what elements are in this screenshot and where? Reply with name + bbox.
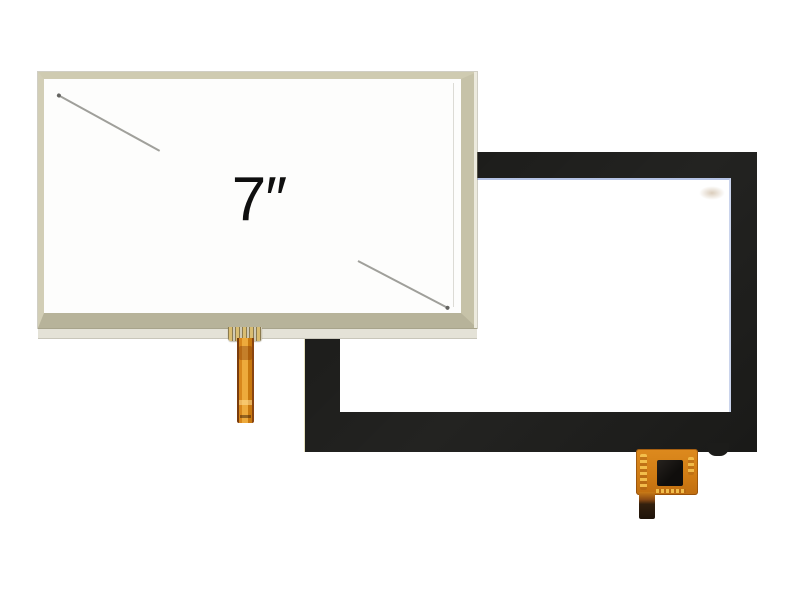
diagonal-scratch-top-left [58,94,161,152]
diagonal-scratch-bottom-right [358,260,449,309]
glass-corner-smudge [699,186,725,200]
capacitive-flex-tail [639,492,655,519]
product-photo: 7″ [0,0,800,600]
resistive-flex-ribbon [237,338,254,423]
touch-controller-ic [657,460,683,486]
screen-size-label: 7″ [192,169,326,231]
scratch-dot [445,305,450,310]
flex-via-column [640,454,647,490]
ribbon-dark-patch [239,346,252,360]
capacitive-panel-notch [707,443,729,456]
capacitive-flex-connector [636,449,698,495]
glass-reflection-line [453,83,454,307]
flex-trace-row [656,489,686,493]
panel-edge-glint [474,72,477,328]
resistive-panel-frame: 7″ [38,72,477,328]
resistive-touch-panel: 7″ [38,72,477,352]
scratch-dot [56,93,61,98]
ribbon-tip-mark [240,415,251,418]
ribbon-light-band [239,400,252,405]
flex-side-pads [688,457,694,475]
